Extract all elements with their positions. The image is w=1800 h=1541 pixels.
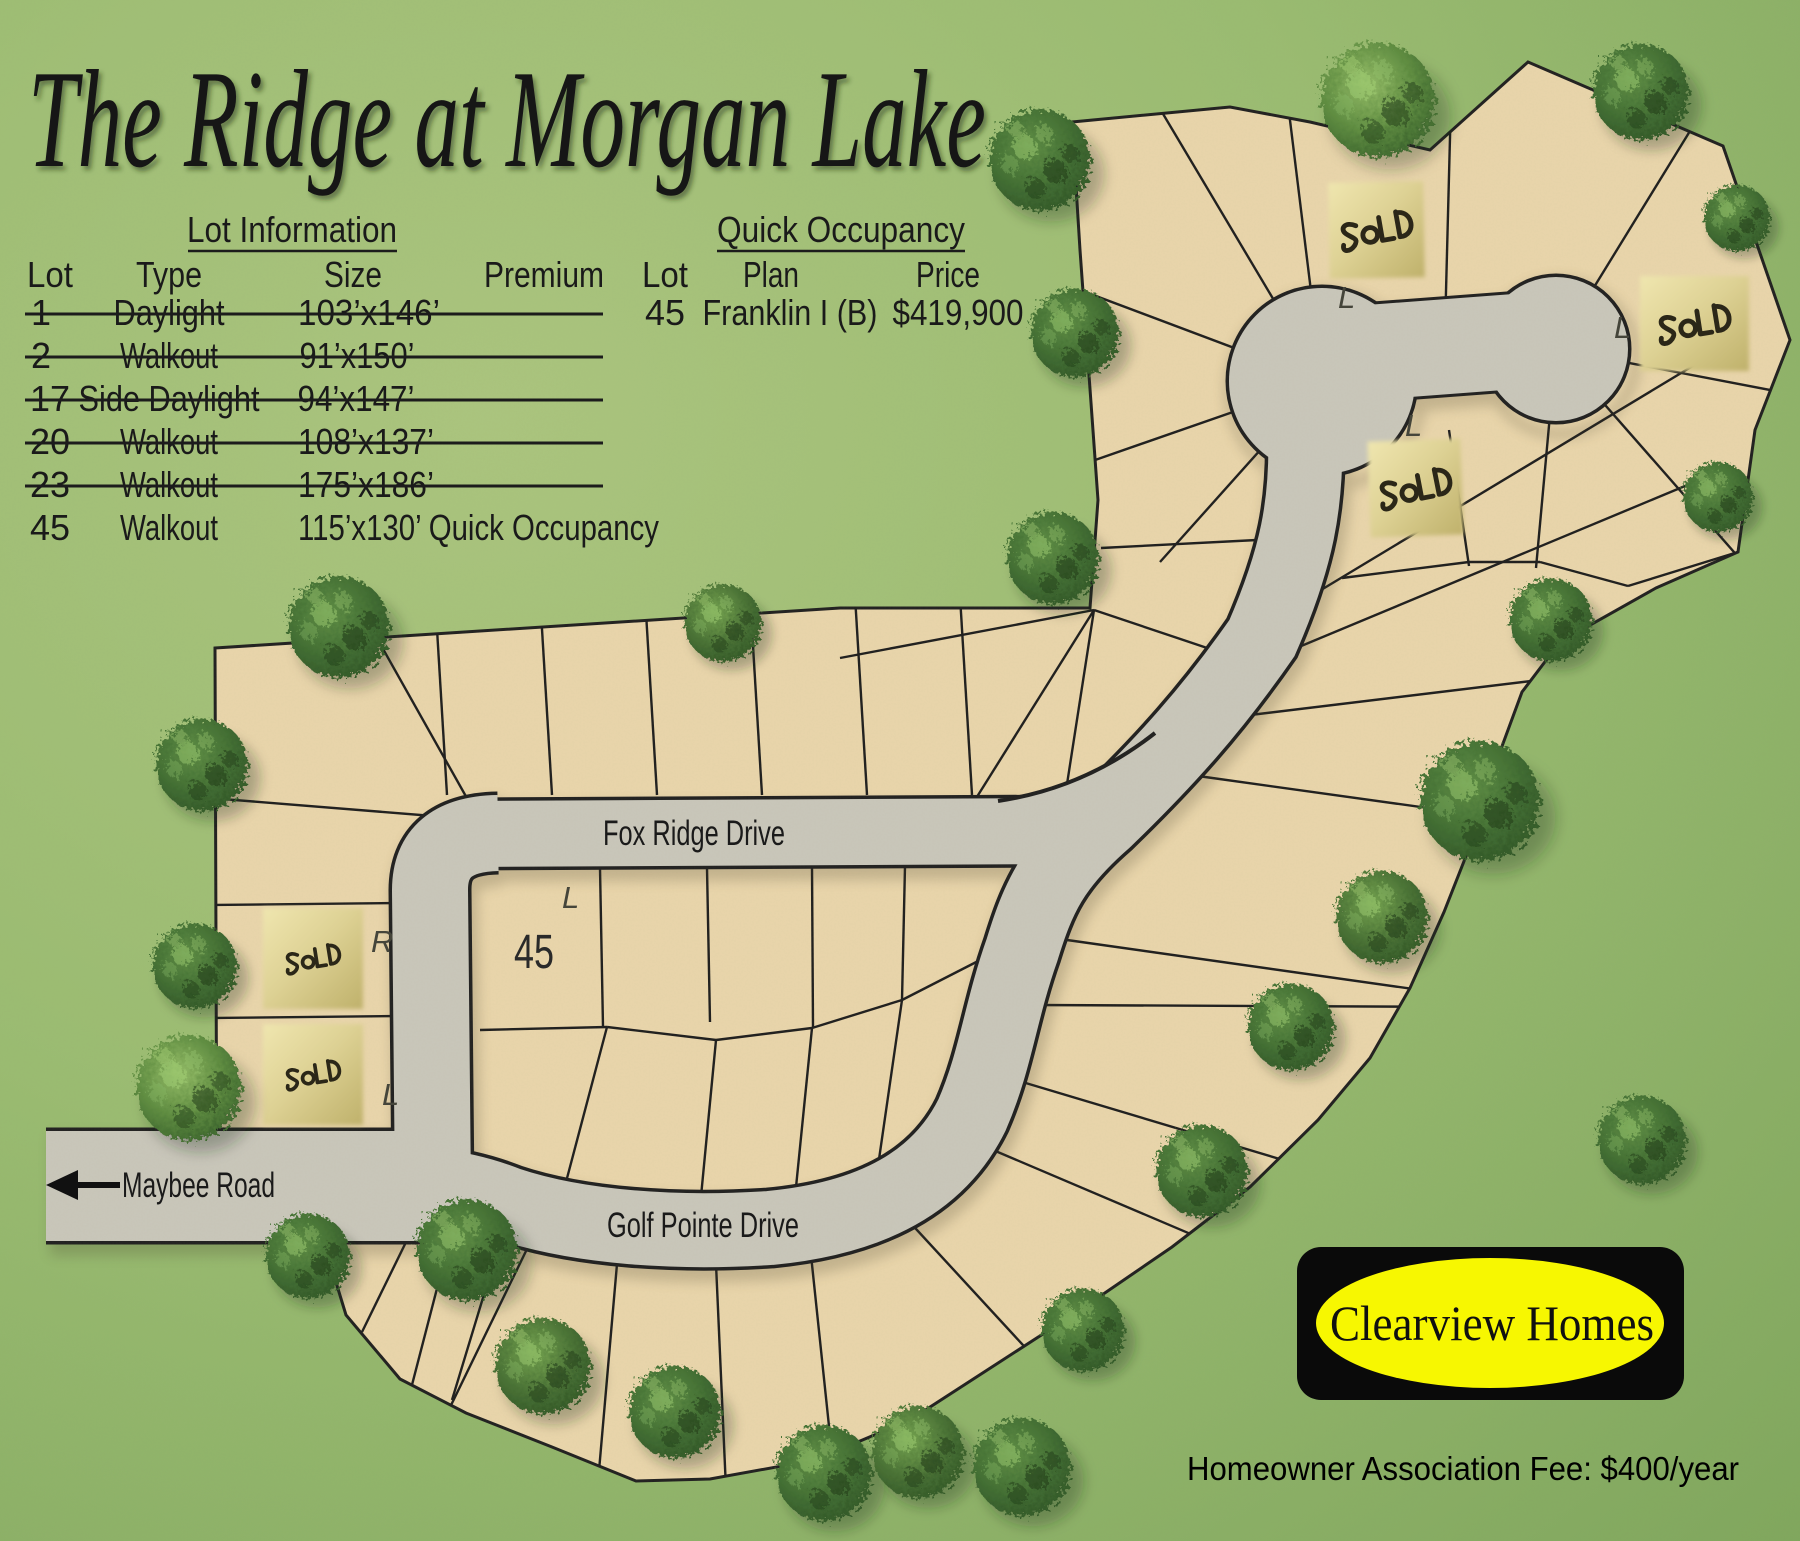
svg-text:L: L <box>1614 310 1631 345</box>
svg-text:Fox Ridge Drive: Fox Ridge Drive <box>603 814 785 853</box>
svg-text:115’x130’ Quick Occupancy: 115’x130’ Quick Occupancy <box>298 507 659 548</box>
svg-text:L: L <box>1405 408 1422 443</box>
svg-text:Franklin I (B): Franklin I (B) <box>703 292 878 333</box>
svg-text:R: R <box>371 924 393 959</box>
svg-text:Plan: Plan <box>743 254 799 295</box>
svg-text:Premium: Premium <box>484 254 604 295</box>
svg-text:Size: Size <box>324 254 382 295</box>
svg-text:Quick Occupancy: Quick Occupancy <box>717 209 965 250</box>
svg-text:45: 45 <box>30 507 70 548</box>
svg-text:Type: Type <box>136 254 202 295</box>
svg-text:Lot: Lot <box>642 254 688 295</box>
svg-text:45: 45 <box>645 292 685 333</box>
svg-text:Homeowner Association Fee: $40: Homeowner Association Fee: $400/year <box>1187 1450 1739 1487</box>
svg-text:Walkout: Walkout <box>120 507 218 548</box>
svg-text:Clearview Homes: Clearview Homes <box>1330 1295 1654 1351</box>
svg-text:45: 45 <box>514 926 554 979</box>
svg-text:L: L <box>382 1077 399 1112</box>
svg-text:The Ridge at Morgan Lake: The Ridge at Morgan Lake <box>28 43 986 197</box>
svg-text:Maybee Road: Maybee Road <box>122 1166 275 1205</box>
svg-text:$419,900: $419,900 <box>893 292 1024 333</box>
svg-text:Golf Pointe Drive: Golf Pointe Drive <box>607 1206 799 1245</box>
svg-text:L: L <box>562 880 579 915</box>
svg-text:Price: Price <box>916 254 980 295</box>
svg-text:L: L <box>1338 280 1355 315</box>
svg-text:Lot: Lot <box>27 254 73 295</box>
svg-text:Lot Information: Lot Information <box>187 209 397 250</box>
